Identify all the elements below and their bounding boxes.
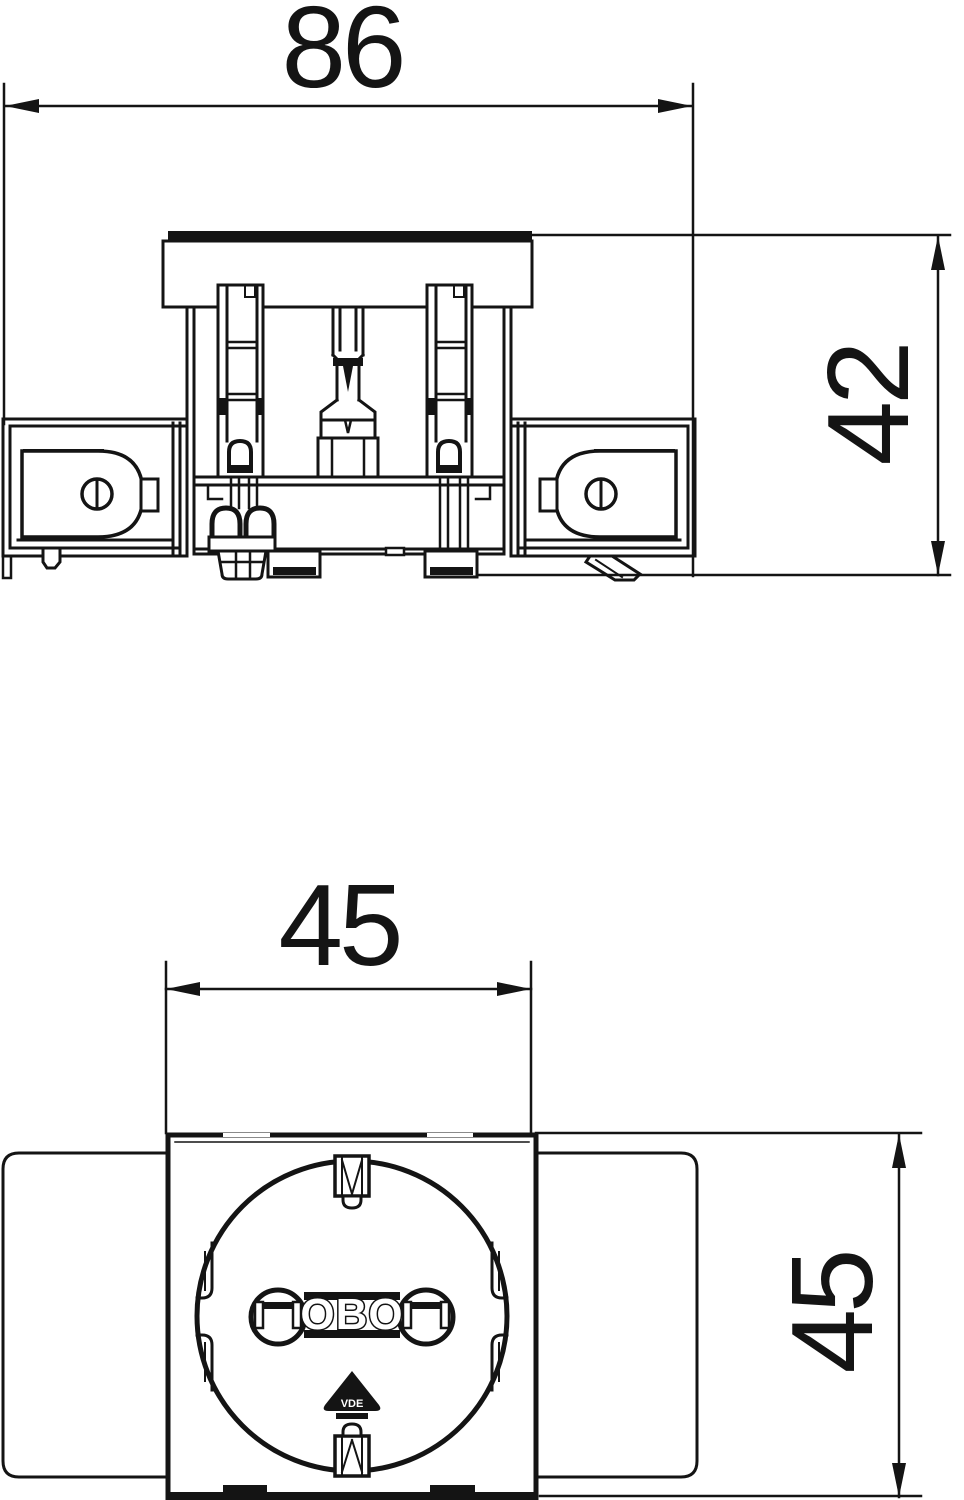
arrowhead-up-icon: [892, 1134, 906, 1168]
drawing-svg: 86 42: [0, 0, 964, 1500]
dim-86-label: 86: [281, 0, 402, 112]
arrowhead-right-icon: [497, 982, 531, 996]
dim-45-height-label: 45: [767, 1252, 897, 1373]
right-cover-panel: [536, 1153, 697, 1477]
screw-terminal: [209, 477, 275, 579]
bottom-claw-slot-right: [430, 1485, 475, 1493]
arrowhead-left-icon: [5, 99, 39, 113]
left-contact: [218, 285, 264, 477]
pin-hole-left: [251, 1290, 305, 1344]
arrowhead-down-icon: [931, 541, 945, 575]
side-section-view: [3, 231, 695, 580]
left-clamp: [3, 419, 187, 578]
arrowhead-right-icon: [658, 99, 692, 113]
bottom-claw-slot-left: [223, 1485, 267, 1493]
retaining-feet: [268, 477, 477, 577]
right-clamp-foot: [586, 556, 640, 580]
right-clamp: [511, 419, 695, 580]
arrowhead-down-icon: [892, 1463, 906, 1497]
pin-hole-right: [399, 1290, 453, 1344]
obo-logo-text: OBO: [300, 1290, 403, 1339]
center-pin: [318, 307, 378, 477]
arrowhead-left-icon: [166, 982, 200, 996]
right-contact: [427, 285, 473, 477]
left-cover-panel: [3, 1153, 168, 1477]
dimension-drawing: 86 42: [0, 0, 964, 1500]
arrowhead-up-icon: [931, 236, 945, 270]
vde-mark-text: VDE: [341, 1398, 364, 1410]
dim-45-width-label: 45: [278, 860, 399, 990]
dim-42-label: 42: [803, 344, 933, 465]
